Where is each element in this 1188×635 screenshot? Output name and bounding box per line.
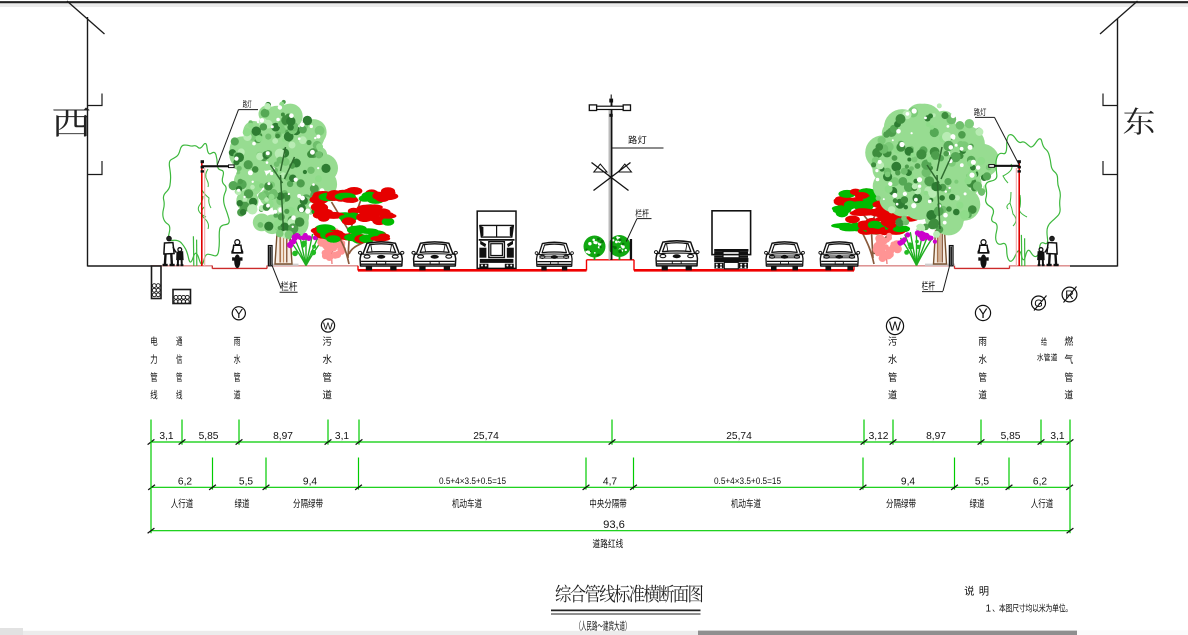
svg-text:0.5+4×3.5+0.5=15: 0.5+4×3.5+0.5=15 <box>439 476 506 486</box>
svg-text:25,74: 25,74 <box>726 431 752 442</box>
svg-text:3,12: 3,12 <box>869 431 889 442</box>
svg-text:5,85: 5,85 <box>1001 431 1021 442</box>
svg-text:25,74: 25,74 <box>473 431 499 442</box>
svg-text:0.5+4×3.5+0.5=15: 0.5+4×3.5+0.5=15 <box>714 476 781 486</box>
svg-text:3,1: 3,1 <box>159 431 173 442</box>
svg-text:4,7: 4,7 <box>603 476 617 487</box>
svg-text:1: 1 <box>986 604 992 615</box>
svg-text:3,1: 3,1 <box>1050 431 1064 442</box>
svg-text:3,1: 3,1 <box>335 431 349 442</box>
svg-text:8,97: 8,97 <box>926 431 946 442</box>
svg-text:6,2: 6,2 <box>1033 476 1047 487</box>
svg-text:93,6: 93,6 <box>603 519 625 531</box>
svg-text:Y: Y <box>234 306 243 321</box>
svg-text:W: W <box>889 319 902 334</box>
svg-text:8,97: 8,97 <box>273 431 293 442</box>
svg-text:W: W <box>323 320 333 332</box>
svg-text:5,85: 5,85 <box>199 431 219 442</box>
svg-text:9,4: 9,4 <box>303 476 317 487</box>
svg-text:Y: Y <box>978 305 988 321</box>
svg-text:5,5: 5,5 <box>239 476 253 487</box>
svg-text:9,4: 9,4 <box>901 476 915 487</box>
svg-text:5,5: 5,5 <box>975 476 989 487</box>
svg-text:6,2: 6,2 <box>178 476 192 487</box>
